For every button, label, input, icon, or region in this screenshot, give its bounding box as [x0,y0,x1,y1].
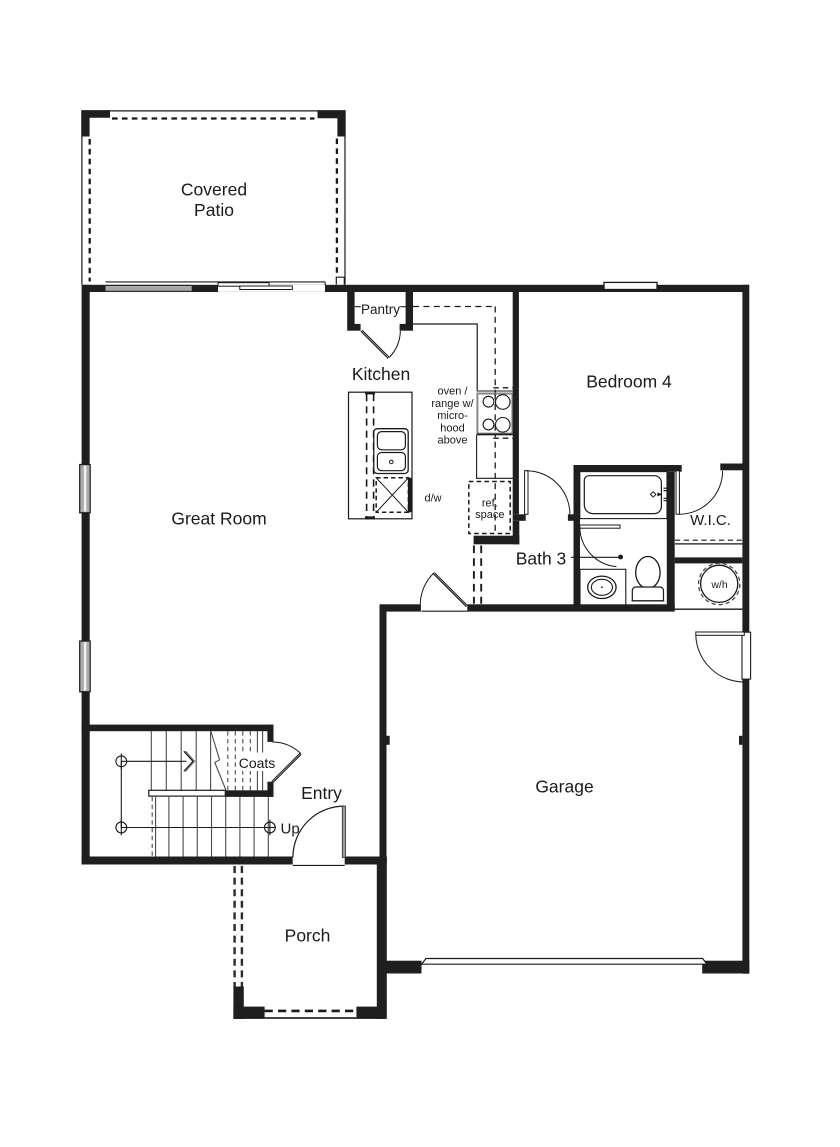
svg-text:Porch: Porch [285,926,331,946]
svg-text:Covered: Covered [181,180,247,200]
svg-text:range w/: range w/ [431,398,474,410]
svg-text:Kitchen: Kitchen [352,364,410,384]
svg-text:Garage: Garage [535,777,593,797]
svg-text:hood: hood [440,422,464,434]
svg-text:oven /: oven / [438,386,469,398]
svg-text:Up: Up [281,821,300,838]
svg-text:space: space [475,509,504,521]
svg-text:Pantry: Pantry [361,302,400,317]
svg-text:Coats: Coats [239,755,276,771]
svg-text:ref.: ref. [482,498,498,510]
svg-text:above: above [438,435,468,447]
svg-text:Bedroom 4: Bedroom 4 [586,372,672,392]
svg-text:Patio: Patio [194,200,234,220]
svg-text:d/w: d/w [425,493,442,505]
svg-text:W.I.C.: W.I.C. [690,512,731,529]
svg-text:micro-: micro- [437,410,468,422]
svg-text:Great Room: Great Room [171,509,266,529]
svg-text:w/h: w/h [710,579,728,591]
svg-text:Bath 3: Bath 3 [516,549,567,569]
svg-text:Entry: Entry [301,783,342,803]
